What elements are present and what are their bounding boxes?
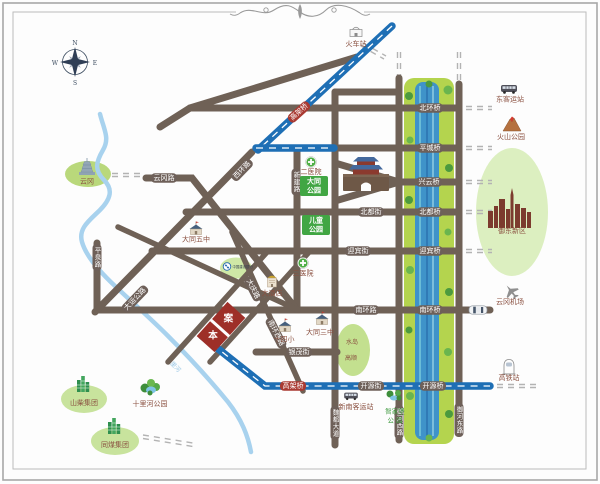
- train-station-label: 火车站: [346, 39, 367, 48]
- school-no5-label: 大同五中: [182, 235, 210, 244]
- bridge-label-kaiyuan: 开源桥: [420, 381, 446, 391]
- ccb-bank-label: 中国建设银行: [233, 264, 254, 269]
- svg-text:云冈路: 云冈路: [154, 173, 175, 182]
- city-map: N S W E 十里河: [0, 0, 600, 484]
- svg-text:平泉路: 平泉路: [93, 247, 101, 269]
- bridge-label-pingcheng: 平城桥: [417, 143, 443, 153]
- no2-hospital-label: 二医院: [301, 167, 322, 176]
- shuidao-area: [336, 324, 370, 376]
- svg-text:新建路: 新建路: [292, 170, 300, 193]
- zhijiabao-park-label-line2: 公 园: [387, 417, 402, 425]
- svg-text:公园: 公园: [307, 186, 321, 195]
- bridge-label-xingyun: 兴云桥: [416, 177, 442, 187]
- svg-text:北都桥: 北都桥: [420, 207, 441, 216]
- road-label-nanhuan: 南环路: [353, 305, 379, 315]
- svg-text:兴云桥: 兴云桥: [419, 177, 440, 186]
- site-label-an: 案: [223, 312, 234, 324]
- hsr-train-icon: [503, 360, 516, 375]
- svg-text:迎宾桥: 迎宾桥: [420, 246, 441, 255]
- svg-text:高架桥: 高架桥: [283, 381, 304, 390]
- children-park-box: 儿童 公园: [302, 215, 330, 235]
- zhijiabao-park-label-line1: 智家堡: [385, 407, 405, 416]
- tongmei-group-label: 同煤集团: [101, 440, 129, 449]
- east-bus-station-label: 东客运站: [496, 95, 524, 104]
- road-label-yuhe-east: 御河东路: [455, 403, 464, 437]
- hotel-icon: [268, 276, 277, 287]
- south-bus-station-label: 新南客运站: [339, 402, 374, 411]
- bridge-label-yingbin: 迎宾桥: [417, 246, 443, 256]
- ornament-flourish-icon: [230, 4, 370, 20]
- volcano-park-label: 火山公园: [497, 132, 525, 141]
- elevated-bridge-label-south: 高架桥: [280, 381, 306, 391]
- car-icon: [469, 306, 487, 314]
- svg-text:儿童: 儿童: [308, 216, 323, 225]
- road-label-kaiyuan-street: 开源街: [358, 381, 384, 391]
- hsr-station-label: 高铁站: [499, 373, 520, 382]
- shilihe-park-label: 十里河公园: [133, 399, 168, 408]
- svg-text:银茂街: 银茂街: [289, 347, 310, 356]
- bridge-label-beihuan: 北环桥: [417, 103, 443, 113]
- svg-text:魏都大道: 魏都大道: [331, 408, 339, 438]
- road-label-weidu-avenue: 魏都大道: [331, 406, 340, 440]
- bridge-label-nanhuan: 南环桥: [417, 305, 443, 315]
- road-label-pingquan: 平泉路: [93, 244, 102, 271]
- road-label-xinjian: 新建路: [292, 169, 301, 196]
- school-no14-label: 十四小: [274, 335, 295, 344]
- shuidao-label: 水岛: [346, 338, 358, 346]
- ccb-bank-icon: [223, 263, 231, 271]
- svg-text:北都街: 北都街: [361, 207, 382, 216]
- road-label-yinmao-street: 银茂街: [286, 347, 312, 357]
- bridge-label-beidu: 北都桥: [417, 207, 443, 217]
- svg-text:公园: 公园: [309, 225, 323, 234]
- compass-north-label: N: [72, 40, 77, 47]
- compass-south-label: S: [73, 80, 77, 87]
- road-label-yungang: 云冈路: [151, 173, 177, 183]
- yudong-district-label: 御东新区: [498, 226, 526, 235]
- site-label-ben: 本: [208, 329, 218, 341]
- svg-text:平城桥: 平城桥: [420, 143, 441, 152]
- road-label-yingbin-street: 迎宾街: [345, 246, 371, 256]
- svg-text:开源街: 开源街: [361, 381, 382, 390]
- no3-hospital-icon: [298, 258, 309, 269]
- yungang-label: 云冈: [80, 178, 94, 186]
- svg-text:南环路: 南环路: [356, 305, 377, 314]
- no3-hospital-label: 三医院: [293, 269, 314, 278]
- compass-east-label: E: [93, 60, 97, 67]
- svg-text:北环桥: 北环桥: [420, 103, 441, 112]
- airport-label: 云冈机场: [496, 297, 524, 306]
- gaoshun-label: 高顺: [345, 354, 357, 362]
- road-label-beidu-street: 北都街: [358, 207, 384, 217]
- svg-text:御河东路: 御河东路: [455, 405, 463, 435]
- no2-hospital-icon: [306, 157, 317, 168]
- hotel-label: 大酒店: [262, 289, 283, 298]
- datong-park-box: 大同 公园: [300, 176, 328, 196]
- svg-text:南环桥: 南环桥: [420, 305, 441, 314]
- shanchai-group-label: 山柴集团: [70, 398, 98, 407]
- svg-text:大同: 大同: [307, 177, 321, 186]
- school-no3-label: 大同三中: [306, 328, 334, 337]
- svg-text:开源桥: 开源桥: [423, 381, 444, 390]
- compass-west-label: W: [52, 60, 59, 67]
- svg-text:迎宾街: 迎宾街: [348, 246, 369, 255]
